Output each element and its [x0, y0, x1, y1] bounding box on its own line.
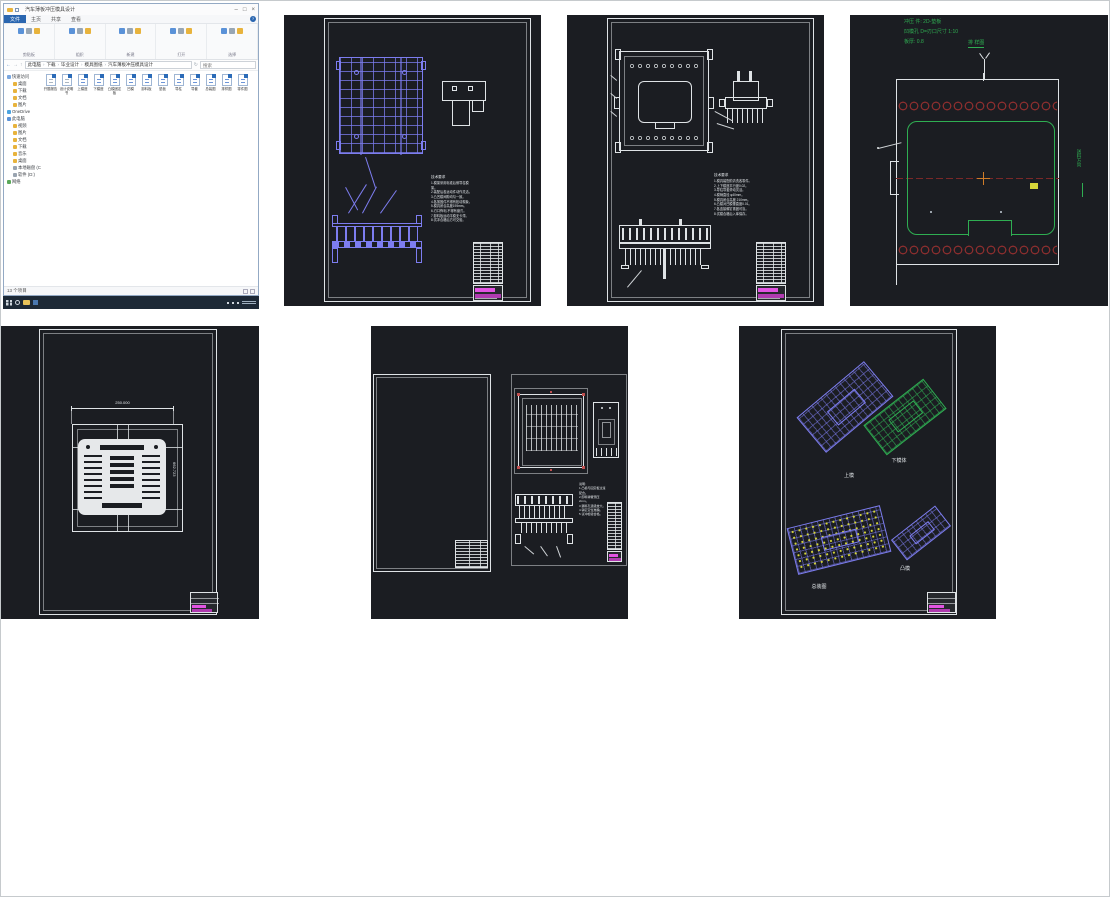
window-title: 汽车薄板冲压模具设计	[25, 6, 230, 13]
file-name: 卸料板	[141, 87, 151, 91]
ribbon-button-icon[interactable]	[26, 28, 32, 34]
maximize-button[interactable]: □	[243, 7, 247, 13]
file-item[interactable]: 总装图	[203, 74, 218, 96]
cad-screenshot-die-set: 250.000 662.723	[1, 326, 259, 619]
nav-item[interactable]: 图片	[4, 101, 41, 108]
file-item[interactable]: 设计说明书	[59, 74, 74, 96]
breadcrumb-segment[interactable]: 汽车薄板冲压模具设计	[108, 62, 157, 68]
minimize-button[interactable]: –	[235, 7, 238, 13]
nav-item-label: 此电脑	[12, 116, 25, 122]
nav-item[interactable]: 音乐	[4, 150, 41, 157]
view-label: 排 样图	[968, 39, 984, 48]
file-item[interactable]: 卸料板	[139, 74, 154, 96]
nav-item-icon	[13, 124, 17, 128]
tab-file[interactable]: 文件	[4, 15, 26, 23]
nav-item-label: 图片	[18, 130, 27, 136]
nav-item-label: 图片	[18, 102, 27, 108]
ribbon-group-label: 选择	[207, 52, 257, 58]
file-icon	[174, 74, 184, 86]
taskbar-clock[interactable]	[242, 299, 256, 307]
cad-screenshot-upper-die: 技术要求 1.模架采用标准后侧导柱模架。2.装配后各运动件动作灵活。3.凸凹模间…	[284, 15, 541, 306]
cad-screenshot-strip-layout: 冲压 件: 2D-垫板 凹模孔 D=刃口尺寸 1:10 板厚: 0.8 排 样图…	[850, 15, 1108, 306]
nav-item-icon	[7, 117, 11, 121]
file-icon	[222, 74, 232, 86]
nav-item-icon	[13, 103, 17, 107]
nav-item[interactable]: 文档	[4, 136, 41, 143]
nav-item[interactable]: 本地磁盘 (C:)	[4, 164, 41, 171]
quick-access-toolbar-icon[interactable]	[15, 8, 19, 12]
thumbnail-view-icon[interactable]	[250, 289, 255, 294]
view-toggles[interactable]	[243, 289, 255, 294]
nav-item-icon	[13, 89, 17, 93]
annotation-line-1: 冲压 件: 2D-垫板	[904, 18, 941, 25]
file-name: 设计说明书	[59, 87, 74, 96]
blank-notch	[968, 220, 1012, 236]
file-item[interactable]: 零件图	[235, 74, 250, 96]
nav-item[interactable]: 快速访问	[4, 73, 41, 80]
ribbon-group[interactable]: 组织	[55, 24, 106, 59]
ribbon-group-label: 新建	[106, 52, 156, 58]
feed-direction-label: 送料方向	[1076, 149, 1082, 167]
nav-item-icon	[7, 110, 11, 114]
file-item[interactable]: 导柱	[171, 74, 186, 96]
parts-list-table	[756, 242, 786, 284]
ribbon-button-icon[interactable]	[237, 28, 243, 34]
cad-screenshot-two-sheets: 说明:1.凸模与固定板过渡配合。2.卸料弹簧预压2mm。3.漏料孔逐级放大。4.…	[371, 326, 628, 619]
title-block	[190, 592, 218, 613]
die-top-view	[619, 51, 709, 151]
die-side-view	[332, 215, 422, 263]
nav-item[interactable]: 桌面	[4, 157, 41, 164]
status-bar: 13 个项目	[4, 286, 258, 295]
file-icon	[158, 74, 168, 86]
iso-label-punch: 凸模	[875, 565, 935, 572]
nav-item[interactable]: 此电脑	[4, 115, 41, 122]
title-block	[607, 551, 622, 562]
file-icon	[238, 74, 248, 86]
ribbon-button-icon[interactable]	[186, 28, 192, 34]
file-icon	[190, 74, 200, 86]
search-box[interactable]	[200, 61, 256, 69]
nav-item-icon	[13, 166, 17, 170]
dimension-right: 662.723	[172, 462, 177, 476]
ribbon-group-label: 组织	[55, 52, 105, 58]
iso-label-upper: 上模	[819, 472, 879, 479]
nav-item[interactable]: 软件 (D:)	[4, 171, 41, 178]
nav-item[interactable]: 下载	[4, 87, 41, 94]
tray-icon[interactable]	[227, 302, 229, 304]
annotation-line-2: 凹模孔 D=刃口尺寸 1:10	[904, 28, 958, 35]
file-name: 上模座	[77, 87, 87, 91]
file-icon	[46, 74, 56, 86]
nav-item[interactable]: 文档	[4, 94, 41, 101]
explorer-main: 快速访问 桌面 下载 文档 图片 OneDrive	[4, 71, 258, 286]
search-input[interactable]	[201, 63, 255, 68]
die-side-view	[619, 219, 711, 281]
taskbar-app-icon[interactable]	[33, 300, 38, 305]
taskbar-explorer-icon[interactable]	[23, 300, 30, 305]
nav-item-label: 网络	[12, 179, 21, 185]
ribbon-button-icon[interactable]	[69, 28, 75, 34]
breadcrumb-segment[interactable]: 毕业设计	[61, 62, 85, 68]
nav-item-icon	[13, 138, 17, 142]
screenshot-canvas: 汽车薄板冲压模具设计 – □ × 文件 主页 共享 查看 ? 剪贴板	[0, 0, 1110, 897]
technical-notes: 技术要求 1.模具装配前清洗各零件。2.上下模座平行度0.02。3.导柱导套滑动…	[714, 173, 756, 216]
file-name: 凹模	[127, 87, 134, 91]
file-name: 下模座	[93, 87, 103, 91]
empty-sheet-title-block	[455, 540, 488, 568]
folder-icon	[7, 8, 13, 12]
ribbon-button-icon[interactable]	[18, 28, 24, 34]
title-block	[473, 285, 503, 301]
file-icon	[94, 74, 104, 86]
start-icon[interactable]	[6, 300, 12, 306]
file-icon	[142, 74, 152, 86]
ribbon-group-label: 打开	[156, 52, 206, 58]
file-item[interactable]: 凸模固定板	[107, 74, 122, 96]
section-view	[593, 402, 619, 458]
ribbon-button-icon[interactable]	[178, 28, 184, 34]
list-view-icon[interactable]	[243, 289, 248, 294]
die-part-plan	[78, 439, 166, 515]
up-icon[interactable]: ↑	[20, 62, 23, 68]
ribbon-group[interactable]: 新建	[106, 24, 157, 59]
file-item[interactable]: 上模座	[75, 74, 90, 96]
forward-icon[interactable]: →	[13, 62, 18, 68]
item-count: 13 个项目	[7, 288, 27, 294]
nav-item-icon	[13, 145, 17, 149]
nav-item-icon	[13, 152, 17, 156]
close-button[interactable]: ×	[251, 7, 255, 13]
cad-screenshot-isometric: 上模 下模体 总装图 凸模	[739, 326, 996, 619]
ribbon-group[interactable]: 剪贴板	[4, 24, 55, 59]
nav-item-icon	[13, 82, 17, 86]
title-bar[interactable]: 汽车薄板冲压模具设计 – □ ×	[4, 4, 258, 15]
breadcrumb-segment[interactable]: 模具图纸	[85, 62, 109, 68]
ribbon-button-icon[interactable]	[221, 28, 227, 34]
ribbon: 剪贴板 组织 新建 打开 选择	[4, 24, 258, 60]
file-icon	[206, 74, 216, 86]
navigation-pane: 快速访问 桌面 下载 文档 图片 OneDrive	[4, 71, 41, 286]
tab-home[interactable]: 主页	[26, 15, 46, 23]
ribbon-group-label: 剪贴板	[4, 52, 54, 58]
cad-screenshot-lower-die: 技术要求 1.模具装配前清洗各零件。2.上下模座平行度0.02。3.导柱导套滑动…	[567, 15, 824, 306]
taskbar-search-icon[interactable]	[15, 300, 20, 305]
nav-item-icon	[13, 96, 17, 100]
nav-item[interactable]: 图片	[4, 129, 41, 136]
nav-item-icon	[7, 75, 11, 79]
nav-item-label: 桌面	[18, 158, 27, 164]
title-block	[756, 285, 786, 301]
die-plate-top-view	[339, 57, 423, 154]
iso-label-lower: 下模体	[869, 457, 929, 464]
dimension-top: 250.000	[71, 400, 174, 405]
ribbon-button-icon[interactable]	[229, 28, 235, 34]
nav-item-label: 文档	[18, 95, 27, 101]
punch-hole-band-bottom	[898, 241, 1057, 259]
file-item[interactable]: 开题报告	[43, 74, 58, 96]
punch-hole-band-top	[898, 97, 1057, 115]
ribbon-button-icon[interactable]	[77, 28, 83, 34]
die-section-view	[515, 494, 577, 550]
iso-label-assembly: 总装图	[789, 583, 849, 590]
file-name: 开题报告	[44, 87, 58, 91]
breadcrumb-segment[interactable]: 此电脑	[28, 62, 47, 68]
file-name: 凸模固定板	[107, 87, 122, 96]
nav-item-label: 本地磁盘 (C:)	[18, 165, 41, 171]
file-item[interactable]: 排样图	[219, 74, 234, 96]
nav-item-label: 桌面	[18, 81, 27, 87]
nav-item-label: OneDrive	[12, 109, 30, 114]
file-icon	[78, 74, 88, 86]
help-icon[interactable]: ?	[250, 16, 256, 22]
technical-notes: 技术要求 1.模架采用标准后侧导柱模架。2.装配后各运动件动作灵活。3.凸凹模间…	[431, 175, 473, 223]
file-name: 导柱	[175, 87, 182, 91]
file-item[interactable]: 导套	[187, 74, 202, 96]
parts-list-table	[607, 502, 622, 550]
nav-item[interactable]: 下载	[4, 143, 41, 150]
ribbon-button-icon[interactable]	[85, 28, 91, 34]
tray-icon[interactable]	[232, 302, 234, 304]
file-name: 导套	[191, 87, 198, 91]
title-block	[927, 592, 956, 613]
nav-item-icon	[13, 173, 17, 177]
files-pane: 开题报告 设计说明书 上模座 下模座 凸模固定板 凹模	[41, 71, 258, 286]
nav-item-icon	[13, 159, 17, 163]
nav-item-icon	[7, 180, 11, 184]
nav-item-icon	[13, 131, 17, 135]
annotation-line-3: 板厚: 0.8	[904, 38, 924, 45]
nav-item-label: 软件 (D:)	[18, 172, 35, 178]
left-bracket	[890, 161, 899, 195]
technical-notes: 说明:1.凸模与固定板过渡配合。2.卸料弹簧预压2mm。3.漏料孔逐级放大。4.…	[579, 482, 607, 517]
windows-taskbar	[3, 296, 259, 309]
file-item[interactable]: 凹模	[123, 74, 138, 96]
ribbon-group[interactable]: 选择	[207, 24, 258, 59]
nav-item-label: 文档	[18, 137, 27, 143]
nav-item-label: 快速访问	[12, 74, 29, 80]
file-name: 零件图	[237, 87, 247, 91]
refresh-icon[interactable]: ↻	[194, 62, 198, 68]
ribbon-button-icon[interactable]	[34, 28, 40, 34]
file-item[interactable]: 垫板	[155, 74, 170, 96]
ribbon-button-icon[interactable]	[135, 28, 141, 34]
section-view	[719, 71, 773, 131]
die-top-view	[518, 394, 584, 468]
parts-list-table	[473, 242, 503, 284]
address-bar-row: ← → ↑ 此电脑下载毕业设计模具图纸汽车薄板冲压模具设计 ↻	[4, 60, 258, 71]
tray-icon[interactable]	[237, 302, 239, 304]
file-icon	[126, 74, 136, 86]
breadcrumb-segment[interactable]: 下载	[47, 62, 62, 68]
nav-item[interactable]: 视频	[4, 122, 41, 129]
selection-marker	[1030, 183, 1038, 189]
file-icon	[110, 74, 120, 86]
ribbon-button-icon[interactable]	[127, 28, 133, 34]
tab-share[interactable]: 共享	[46, 15, 66, 23]
nav-item-label: 下载	[18, 88, 27, 94]
nav-item-label: 音乐	[18, 151, 27, 157]
file-icon	[62, 74, 72, 86]
back-icon[interactable]: ←	[6, 62, 11, 68]
nav-item-label: 视频	[18, 123, 27, 129]
ribbon-button-icon[interactable]	[170, 28, 176, 34]
ribbon-tabs: 文件 主页 共享 查看 ?	[4, 15, 258, 24]
ribbon-button-icon[interactable]	[119, 28, 125, 34]
file-name: 总装图	[205, 87, 215, 91]
nav-item[interactable]: 桌面	[4, 80, 41, 87]
file-item[interactable]: 下模座	[91, 74, 106, 96]
nav-item[interactable]: 网络	[4, 178, 41, 185]
nav-item-label: 下载	[18, 144, 27, 150]
file-explorer-window: 汽车薄板冲压模具设计 – □ × 文件 主页 共享 查看 ? 剪贴板	[3, 3, 259, 296]
file-name: 排样图	[221, 87, 231, 91]
nav-item[interactable]: OneDrive	[4, 108, 41, 115]
file-name: 垫板	[159, 87, 166, 91]
breadcrumb[interactable]: 此电脑下载毕业设计模具图纸汽车薄板冲压模具设计	[25, 61, 192, 69]
tab-view[interactable]: 查看	[66, 15, 86, 23]
ribbon-group[interactable]: 打开	[156, 24, 207, 59]
